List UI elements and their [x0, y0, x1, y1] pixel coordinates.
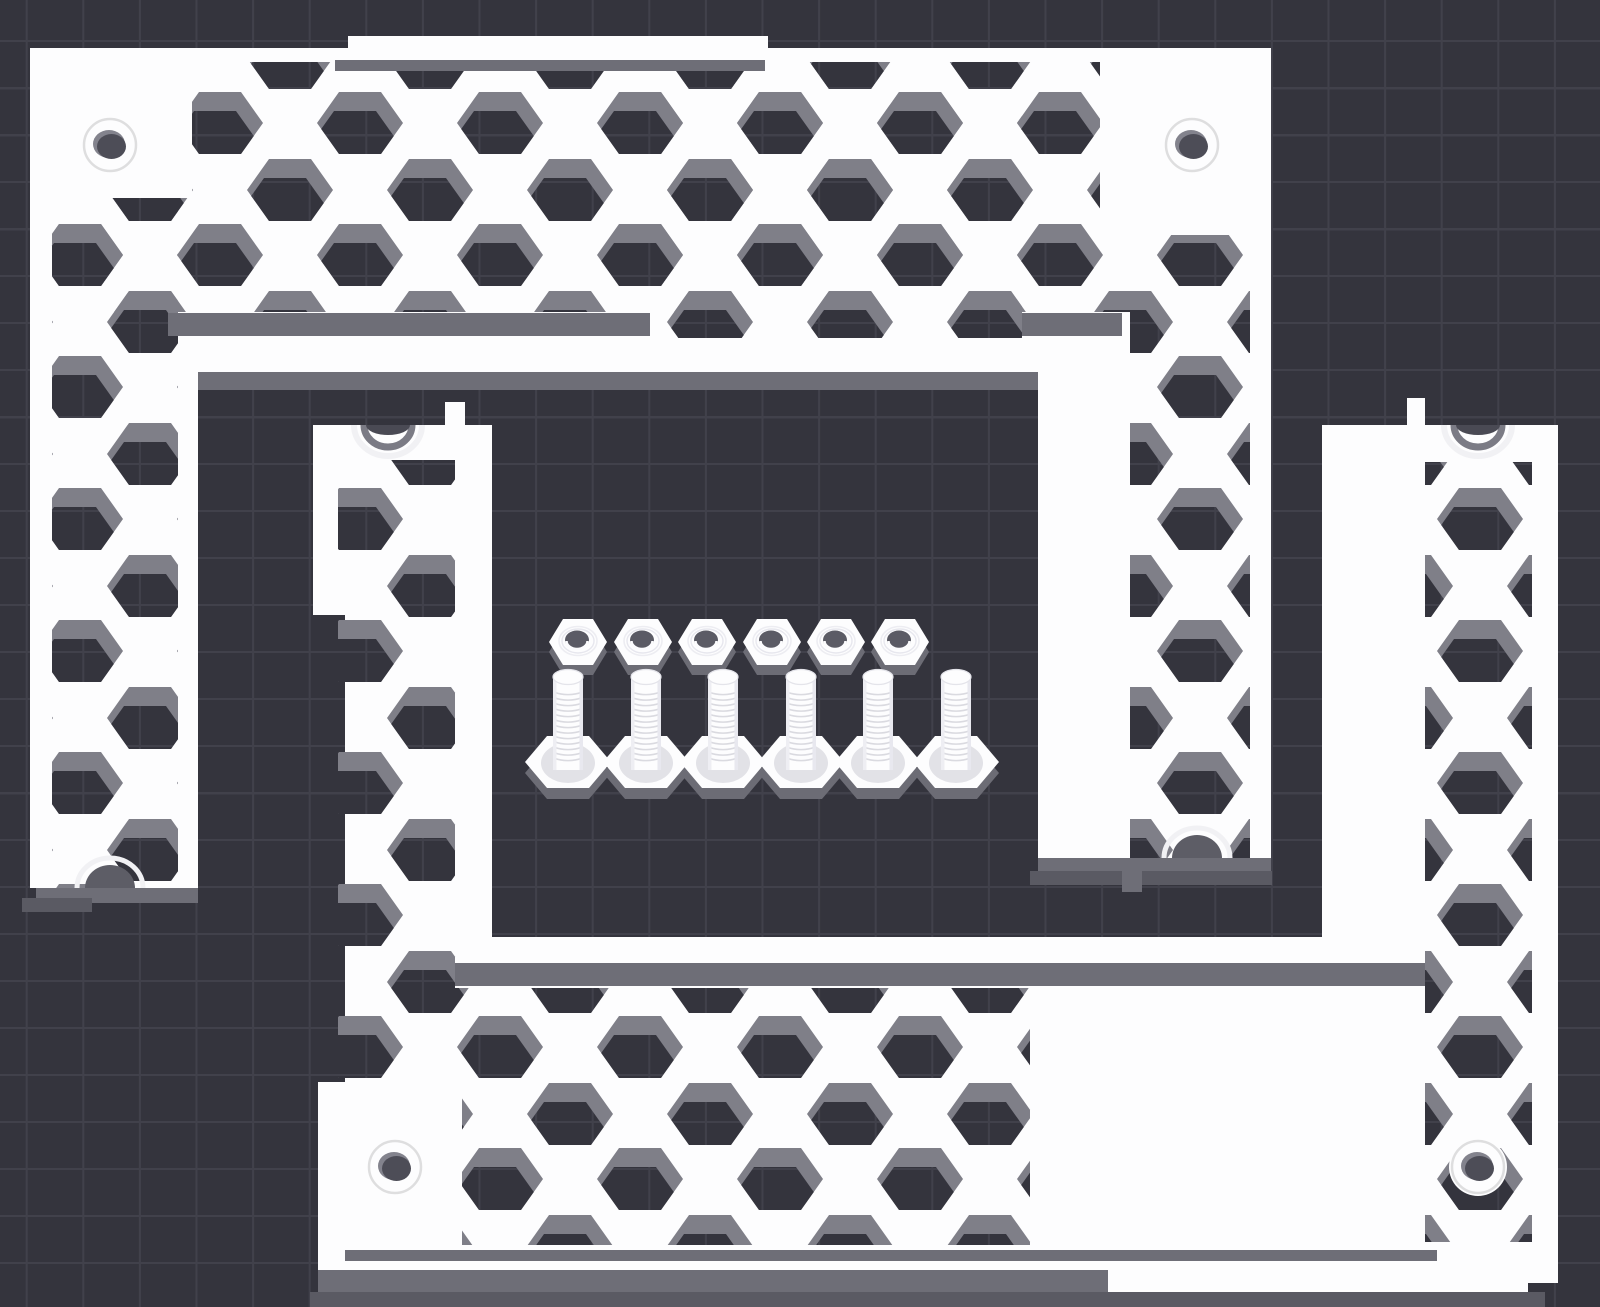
frame-top-wall-strip: [1038, 858, 1271, 873]
scene-canvas[interactable]: [0, 0, 1600, 1307]
frame-bottom-screw-hole: [1449, 1138, 1507, 1196]
frame-top-wall-strip: [1030, 871, 1272, 885]
frame-bottom-screw-hole: [366, 1138, 424, 1196]
frame-top-wall-strip: [1022, 313, 1122, 336]
frame-top-wall-strip: [22, 898, 92, 912]
frame-top-wall-strip: [1122, 858, 1142, 892]
frame-bottom-wall-strip: [310, 1292, 1545, 1307]
frame-top-wall-strip: [335, 60, 765, 71]
frame-bottom-wall-strip: [455, 963, 1425, 986]
viewport-3d[interactable]: [0, 0, 1600, 1307]
frame-top-wall-strip: [198, 372, 1038, 390]
frame-bottom-wall-strip: [318, 1270, 1108, 1292]
frame-top-wall-strip: [168, 313, 650, 336]
frame-bottom-wall-strip: [345, 1250, 1437, 1261]
frame-top-screw-hole: [1163, 116, 1221, 174]
frame-top-screw-hole: [81, 116, 139, 174]
